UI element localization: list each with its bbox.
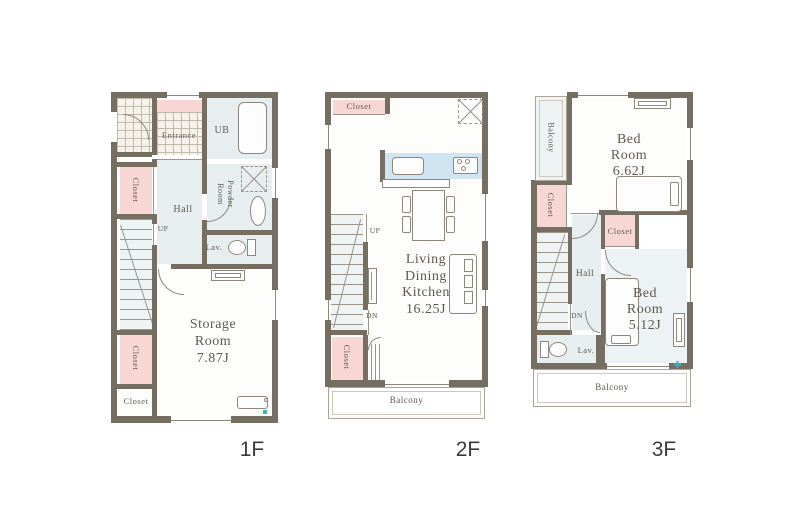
storage-room-label: Storage Room 7.87J (163, 316, 263, 367)
closet-bottom-label: Closet (342, 340, 352, 374)
balcony-bottom-label: Balcony (533, 382, 691, 392)
floor-plan-2f: Closet UP DN Living Dining Kitchen 16.25… (325, 92, 488, 422)
toilet-bowl (228, 240, 246, 255)
floor-plan-image: Entrance UB Powder Room Closet Hall UP L… (0, 0, 800, 531)
window (171, 416, 231, 423)
bedroom1-size: 6.62J (584, 164, 674, 180)
ldk-label: Living Dining Kitchen 16.25J (381, 252, 471, 318)
wall (531, 180, 537, 363)
closet-mid-label: Closet (603, 226, 637, 236)
toilet-tank (540, 341, 549, 358)
burner (465, 159, 470, 164)
window (167, 92, 199, 98)
closet-front-line (605, 246, 635, 247)
floor-plan-1f: Entrance UB Powder Room Closet Hall UP L… (111, 92, 278, 423)
floor-caption-3f: 3F (642, 438, 686, 462)
balcony-left-label: Balcony (547, 121, 556, 155)
wall (363, 335, 368, 380)
wall (202, 164, 207, 194)
storage-line: Room (163, 333, 263, 350)
ldk-size: 16.25J (381, 302, 471, 319)
entrance-label: Entrance (149, 130, 209, 140)
water-tap-mark (263, 410, 267, 414)
window (482, 290, 488, 306)
shelf-top (215, 273, 241, 278)
wall (330, 330, 367, 335)
refrigerator-space (458, 99, 483, 124)
burner (461, 166, 466, 171)
dn-label: DN (567, 311, 587, 320)
closet-upper-label: Closet (131, 173, 141, 207)
up-label: UP (153, 224, 173, 233)
pillow (611, 335, 631, 344)
front-door-gap (111, 112, 117, 142)
desk-knob (264, 398, 268, 402)
wall (152, 98, 157, 155)
window (325, 300, 331, 320)
wall (272, 92, 278, 423)
burner (457, 159, 462, 164)
closet-front-line (333, 114, 385, 115)
bedroom2-line: Bed (600, 286, 690, 302)
floor-plan-3f: Balcony Bed Room 6.62J Closet Closet Hal… (531, 92, 693, 412)
closet-top-label: Closet (333, 101, 385, 111)
wash-basin (250, 196, 266, 226)
hall-label: Hall (567, 269, 603, 279)
floor-caption-2f: 2F (446, 438, 490, 462)
pillow (670, 182, 679, 206)
wall (380, 150, 385, 182)
dresser-top (638, 101, 667, 106)
closet-left-label: Closet (546, 188, 556, 222)
bedroom2-label: Bed Room 5.12J (600, 286, 690, 334)
wall (207, 230, 272, 235)
kitchen-sink (392, 157, 424, 175)
bedroom1-label: Bed Room 6.62J (584, 132, 674, 180)
counter-overhang (382, 179, 450, 188)
powder-line: Room (215, 174, 225, 214)
hall-label: Hall (163, 204, 203, 215)
wall (568, 230, 572, 304)
ldk-line: Dining (381, 269, 471, 286)
storage-size: 7.87J (163, 350, 263, 367)
up-label: UP (365, 226, 385, 235)
bedroom1-line: Bed (584, 132, 674, 148)
wall (531, 330, 572, 335)
wall (171, 264, 272, 269)
window (482, 194, 488, 241)
closet-front-line (153, 167, 154, 214)
floor-caption-1f: 1F (230, 438, 274, 462)
tv-board-line (371, 272, 372, 300)
wall (117, 330, 153, 335)
ldk-line: Kitchen (381, 285, 471, 302)
wall (567, 92, 572, 185)
window (687, 128, 693, 160)
window (272, 290, 278, 320)
step-line (157, 159, 202, 160)
wall (117, 384, 153, 389)
ub-label: UB (207, 125, 237, 136)
dn-label: DN (362, 311, 382, 320)
bedroom1-line: Room (584, 148, 674, 164)
tv-board (368, 268, 377, 304)
bedroom2-size: 5.12J (600, 318, 690, 334)
ldk-line: Living (381, 252, 471, 269)
window (325, 125, 331, 149)
balcony-label: Balcony (328, 395, 485, 405)
wall (117, 162, 153, 167)
wall (117, 214, 153, 219)
balcony-door-window (385, 380, 449, 387)
toilet-tank (247, 239, 256, 256)
dining-table (412, 190, 445, 241)
lav-label: Lav. (199, 242, 229, 252)
shoe-cabinet (157, 100, 202, 112)
wall (533, 227, 572, 232)
chair (402, 216, 411, 233)
bathtub (238, 102, 267, 154)
wall (152, 159, 157, 167)
wall (385, 98, 390, 114)
lav-label: Lav. (574, 345, 598, 355)
bedroom2-line: Room (600, 302, 690, 318)
closet-bottom-label: Closet (115, 396, 157, 406)
powder-room-label: Powder Room (215, 174, 235, 214)
water-tap-mark (674, 361, 681, 368)
toilet-bowl (549, 342, 567, 357)
closet-lower-label: Closet (131, 341, 141, 375)
wall (117, 152, 152, 157)
wall (152, 214, 157, 224)
wall (325, 92, 488, 98)
storage-line: Storage (163, 316, 263, 333)
washing-machine-pan (241, 166, 267, 192)
chair (446, 196, 455, 213)
powder-line: Powder (225, 174, 235, 214)
closet-front-line (566, 185, 567, 227)
window (272, 168, 278, 198)
window (578, 92, 628, 98)
chair (402, 196, 411, 213)
chair (446, 216, 455, 233)
